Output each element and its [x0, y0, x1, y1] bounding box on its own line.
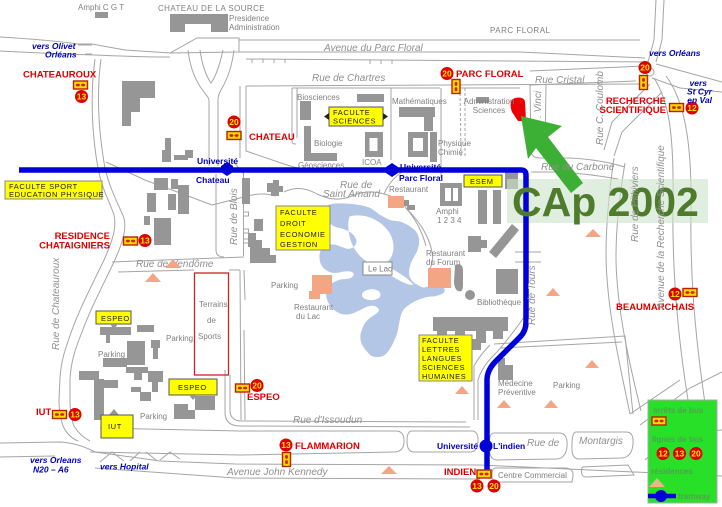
svg-text:Parking: Parking [140, 412, 167, 421]
svg-text:ECONOMIE: ECONOMIE [280, 230, 326, 239]
svg-text:arrêts de bus: arrêts de bus [653, 406, 704, 415]
svg-text:FACULTE: FACULTE [422, 336, 459, 345]
svg-text:Sciences: Sciences [473, 106, 505, 115]
svg-text:Chateau: Chateau [196, 175, 230, 185]
svg-text:CHATEAU: CHATEAU [249, 132, 295, 143]
svg-text:Médecine: Médecine [498, 379, 533, 388]
svg-text:Amphi C G T: Amphi C G T [78, 3, 124, 12]
svg-text:ESPEO: ESPEO [247, 392, 280, 403]
svg-text:Parking: Parking [271, 281, 298, 290]
svg-text:Université: Université [437, 441, 478, 451]
svg-text:Administration: Administration [464, 97, 515, 106]
svg-text:SCIENCES: SCIENCES [333, 117, 376, 126]
svg-text:Géosciences: Géosciences [298, 161, 344, 170]
svg-text:IUT: IUT [108, 422, 122, 431]
svg-text:ESPEO: ESPEO [101, 314, 130, 323]
svg-text:en Val: en Val [687, 95, 712, 105]
svg-text:GESTION: GESTION [280, 240, 318, 249]
svg-text:LANGUES: LANGUES [422, 354, 462, 363]
svg-text:Avenue John Kennedy: Avenue John Kennedy [226, 467, 328, 478]
svg-text:INDIEN: INDIEN [444, 467, 476, 478]
svg-text:Rue Cristal: Rue Cristal [535, 75, 585, 86]
svg-text:ESEM: ESEM [470, 177, 494, 186]
svg-text:Restaurant: Restaurant [426, 249, 466, 258]
svg-text:Rue de Blois: Rue de Blois [229, 188, 240, 245]
svg-text:lignes de bus: lignes de bus [652, 435, 704, 444]
svg-text:HUMAINES: HUMAINES [422, 372, 466, 381]
svg-text:Terrains: Terrains [199, 300, 227, 309]
svg-text:Parc Floral: Parc Floral [399, 173, 443, 183]
svg-text:Université: Université [197, 156, 238, 166]
svg-text:Physique: Physique [438, 139, 471, 148]
svg-text:ESPEO: ESPEO [178, 383, 207, 392]
svg-text:Rue de Pithiviers: Rue de Pithiviers [630, 166, 641, 242]
svg-text:Restaurant: Restaurant [294, 303, 334, 312]
svg-text:Rue d'Issoudun: Rue d'Issoudun [293, 415, 363, 426]
svg-text:vers Hopital: vers Hopital [100, 462, 149, 472]
svg-text:Restaurant: Restaurant [389, 185, 429, 194]
svg-text:Orléans: Orléans [45, 50, 77, 60]
svg-text:PARC FLORAL: PARC FLORAL [490, 26, 551, 35]
svg-text:LETTRES: LETTRES [422, 345, 460, 354]
svg-text:résidences: résidences [651, 467, 693, 476]
svg-text:Parking: Parking [553, 381, 580, 390]
svg-text:N20 – A6: N20 – A6 [33, 465, 69, 475]
svg-text:SCIENCES: SCIENCES [422, 363, 465, 372]
svg-text:Rue de Tours: Rue de Tours [527, 265, 538, 325]
svg-text:Saint Amand: Saint Amand [323, 189, 380, 200]
svg-text:Rue de Chartres: Rue de Chartres [312, 73, 385, 84]
svg-text:SCIENTIFIQUE: SCIENTIFIQUE [599, 105, 666, 116]
svg-text:Parking: Parking [166, 334, 193, 343]
svg-text:Rue du Carbone: Rue du Carbone [541, 162, 615, 173]
svg-text:L'indien: L'indien [493, 441, 525, 451]
svg-text:Mathématiques: Mathématiques [392, 97, 447, 106]
svg-text:PARC FLORAL: PARC FLORAL [456, 69, 524, 80]
svg-text:Rue C. Coulomb: Rue C. Coulomb [595, 71, 606, 145]
svg-text:Chimie: Chimie [438, 148, 463, 157]
svg-text:ICOA: ICOA [362, 158, 382, 167]
svg-text:Avenue de la Recherche Scienti: Avenue de la Recherche Scientifique [656, 145, 667, 310]
svg-text:CAp 2002: CAp 2002 [512, 179, 699, 225]
svg-text:du Lac: du Lac [296, 312, 320, 321]
svg-text:CHATEAU DE LA SOURCE: CHATEAU DE LA SOURCE [158, 4, 265, 13]
svg-text:Montargis: Montargis [579, 436, 623, 447]
svg-text:DROIT: DROIT [280, 219, 306, 228]
svg-text:Centre Commercial: Centre Commercial [498, 471, 567, 480]
svg-text:tramway: tramway [678, 492, 711, 501]
svg-text:Université: Université [400, 162, 441, 172]
svg-text:Biologie: Biologie [314, 139, 343, 148]
svg-text:Bibliothèque: Bibliothèque [477, 298, 522, 307]
svg-text:Le Lac: Le Lac [368, 265, 392, 274]
svg-text:de: de [207, 316, 216, 325]
svg-text:Avenue du Parc Floral: Avenue du Parc Floral [323, 43, 424, 54]
svg-text:vers Orleans: vers Orleans [30, 455, 82, 465]
svg-text:Préventive: Préventive [498, 388, 536, 397]
svg-text:Amphi: Amphi [436, 207, 459, 216]
svg-text:vers Orléans: vers Orléans [649, 48, 701, 58]
svg-text:1 2 3 4: 1 2 3 4 [437, 216, 462, 225]
svg-text:Presidence: Presidence [229, 14, 270, 23]
svg-text:Rue de: Rue de [527, 438, 560, 449]
svg-text:Administration: Administration [229, 23, 280, 32]
svg-text:Sports: Sports [198, 332, 221, 341]
svg-text:CHATAIGNIERS: CHATAIGNIERS [39, 241, 110, 252]
svg-text:FACULTE: FACULTE [280, 208, 317, 217]
svg-text:Biosciences: Biosciences [297, 93, 340, 102]
svg-text:Parking: Parking [98, 350, 125, 359]
svg-text:Rue de Chateauroux: Rue de Chateauroux [51, 257, 62, 350]
svg-text:EDUCATION PHYSIQUE: EDUCATION PHYSIQUE [9, 190, 104, 199]
svg-text:. Vinci: . Vinci [533, 90, 544, 118]
svg-text:CHATEAUROUX: CHATEAUROUX [23, 70, 97, 81]
svg-text:du Forum: du Forum [426, 258, 461, 267]
svg-text:IUT: IUT [36, 407, 52, 418]
svg-text:FLAMMARION: FLAMMARION [295, 441, 360, 452]
